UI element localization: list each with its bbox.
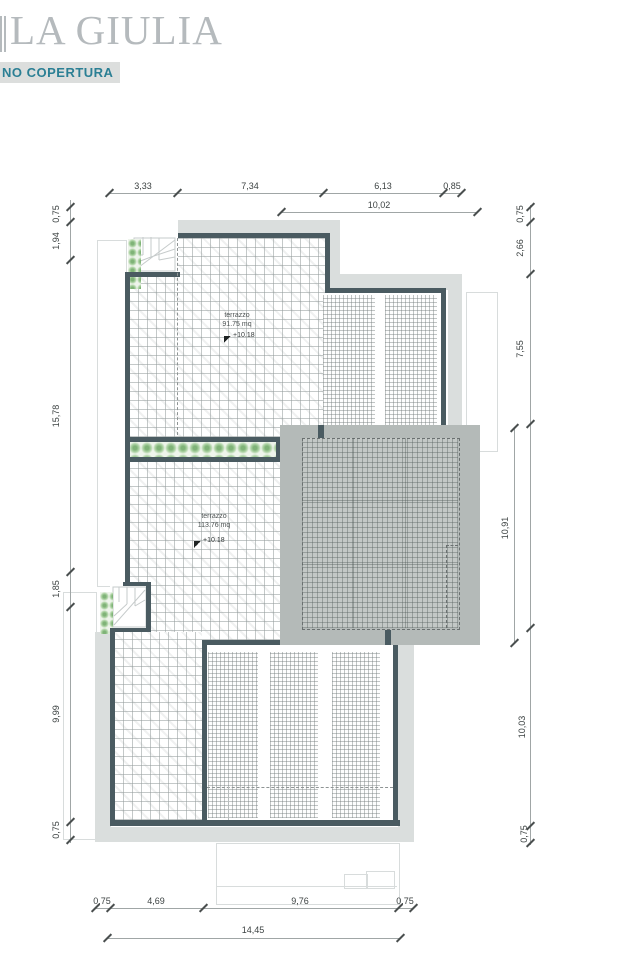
roof-slab-band-left-lower — [95, 632, 111, 842]
dim-line — [514, 428, 515, 643]
level-marker-icon — [224, 336, 231, 343]
dim-label: 2,66 — [515, 239, 525, 257]
dim-label: 4,69 — [147, 896, 165, 906]
dim-label: 3,33 — [134, 181, 152, 191]
parapet-wall — [330, 288, 446, 293]
lower-floor-detail — [344, 874, 368, 889]
dim-label: 10,02 — [368, 200, 391, 210]
planter-strip — [129, 442, 280, 457]
stair-symbol — [111, 586, 148, 629]
dim-label: 14,45 — [242, 925, 265, 935]
parapet-wall — [178, 233, 330, 238]
roof-slab-band-right — [448, 274, 462, 426]
lower-floor-outline — [63, 592, 97, 840]
lower-terrace-paving — [129, 462, 280, 640]
dim-label: 9,99 — [51, 705, 61, 723]
planter-wall — [125, 457, 280, 462]
roof-slab-band-bottom — [95, 827, 414, 842]
dim-line — [95, 908, 413, 909]
roof-plan-page: { "header": { "title": "LA GIULIA", "sub… — [0, 0, 642, 960]
roof-slab-band-right-lower — [398, 645, 414, 842]
dim-label: 7,55 — [515, 340, 525, 358]
dim-label: 6,13 — [374, 181, 392, 191]
parapet-wall — [393, 640, 398, 826]
canopy-dashed-step — [446, 545, 458, 546]
overhead-edge-dashed — [177, 238, 178, 435]
terrace-label-upper: terrazzo 91.75 mq — [222, 311, 251, 330]
roof-panel — [323, 295, 375, 427]
dim-tick — [473, 207, 482, 216]
dim-label: 0,75 — [51, 205, 61, 223]
wall-stub — [318, 425, 324, 438]
dim-line — [109, 193, 461, 194]
dim-line — [70, 200, 71, 843]
canopy-panel-divider — [353, 438, 354, 628]
planter-wall — [129, 437, 280, 442]
dim-label: 1,94 — [51, 232, 61, 250]
parapet-wall — [110, 628, 115, 826]
dim-tick — [396, 933, 405, 942]
room-name: terrazzo — [224, 312, 249, 319]
roof-panel — [332, 652, 380, 818]
room-name: terrazzo — [201, 513, 226, 520]
stairwell-wall — [146, 582, 151, 632]
stair-arrow-line — [228, 787, 229, 820]
room-area: 113.76 mq — [198, 522, 231, 529]
lower-floor-detail — [366, 871, 395, 889]
level-value: +10.18 — [203, 537, 225, 544]
dim-label: 10,03 — [517, 716, 527, 739]
dim-line — [281, 212, 477, 213]
parapet-wall — [110, 820, 400, 826]
parapet-wall — [325, 233, 330, 293]
hidden-edge-dashed — [207, 787, 393, 788]
canopy-panel-divider — [302, 500, 458, 501]
lower-terrace-paving — [114, 632, 202, 820]
dim-line — [107, 938, 400, 939]
terrace-label-lower: terrazzo 113.76 mq — [198, 512, 231, 531]
canopy-dashed-outline — [302, 438, 460, 630]
parapet-wall — [127, 272, 180, 277]
room-area: 91.75 mq — [222, 321, 251, 328]
roof-panel — [385, 295, 437, 427]
dim-label: 10,91 — [500, 517, 510, 540]
roof-panel — [270, 652, 318, 818]
dim-tick — [510, 638, 519, 647]
parapet-wall — [125, 462, 130, 586]
parapet-wall — [125, 272, 130, 462]
canopy-dashed-step — [446, 545, 447, 628]
dim-label: 0,75 — [515, 205, 525, 223]
dim-label: 7,34 — [241, 181, 259, 191]
canopy-panel-divider — [405, 438, 406, 628]
parapet-wall — [202, 640, 207, 826]
roof-panel — [208, 652, 258, 818]
canopy-panel-divider — [302, 564, 458, 565]
stairwell-wall — [110, 628, 150, 632]
level-value: +10.18 — [233, 332, 255, 339]
level-marker-icon — [194, 541, 201, 548]
dim-label: 1,85 — [51, 580, 61, 598]
dim-label: 9,76 — [291, 896, 309, 906]
parapet-wall — [441, 288, 446, 425]
dim-label: 0,75 — [51, 821, 61, 839]
roof-slab-band-top — [178, 220, 340, 234]
dim-label: 15,78 — [51, 405, 61, 428]
dim-line — [530, 205, 531, 845]
lower-floor-outline — [97, 240, 127, 587]
floor-plan-drawing: terrazzo 91.75 mq +10.18 terrazzo 113.76… — [0, 0, 642, 960]
wall-stub — [385, 630, 391, 645]
